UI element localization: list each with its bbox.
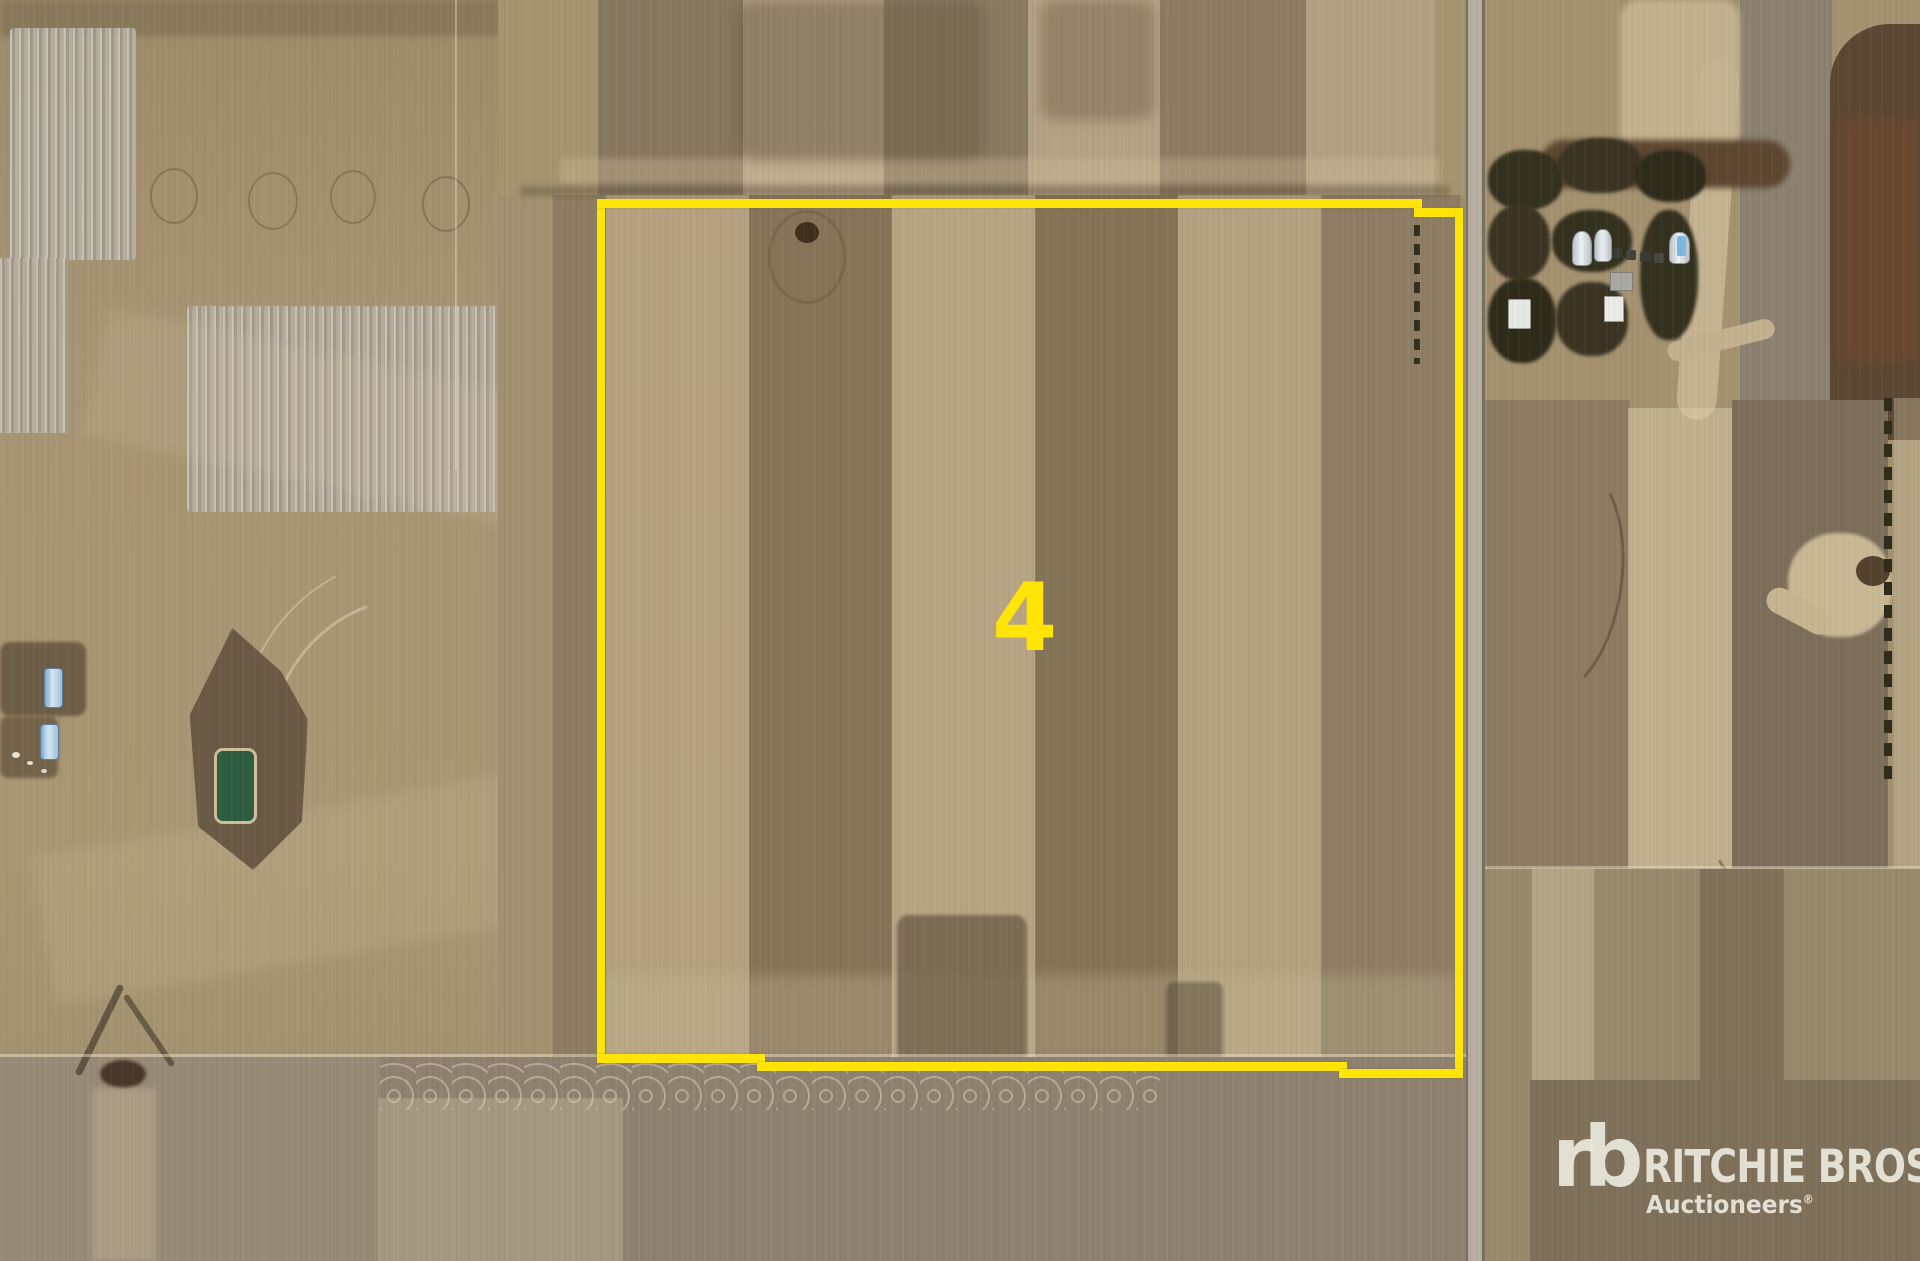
wet-soil-patch-2: [1166, 982, 1223, 1065]
parcel-number-label: 4: [992, 572, 1057, 666]
tree-cluster-1: [1488, 150, 1563, 210]
quonset-building-2: [1594, 229, 1612, 262]
ritchie-bros-logo: rb RITCHIE BROS. Auctioneers®: [1552, 1118, 1920, 1217]
field-ring-mark-1: [150, 168, 198, 224]
parcel-boundary-bottom-c: [1339, 1069, 1463, 1078]
white-outbuilding: [1604, 296, 1624, 322]
right-hedge-line: [1884, 398, 1892, 786]
blue-roof-building-2: [40, 724, 59, 760]
parcel-boundary-bottom-a: [597, 1054, 765, 1063]
logo-text-block: RITCHIE BROS. Auctioneers®: [1643, 1144, 1920, 1217]
farmyard-white-sheds: [12, 752, 20, 758]
wet-soil-patch-1: [897, 915, 1027, 1065]
field-seam-line: [455, 0, 457, 470]
right-bottom-dark-strip: [1700, 869, 1784, 1084]
right-bottom-light-strip: [1532, 869, 1594, 1084]
shrub-line-top: [1414, 206, 1420, 364]
headland-dark-line: [520, 186, 1450, 196]
logo-tagline-row: Auctioneers®: [1646, 1192, 1920, 1217]
parcel-boundary-bottom-b: [757, 1062, 1347, 1071]
gravel-road: [1466, 0, 1485, 1261]
logo-tagline: Auctioneers: [1646, 1190, 1803, 1219]
drainage-light-tail: [92, 1088, 156, 1261]
farm-equipment-row: [1612, 248, 1622, 258]
gray-stubble-patch-2: [0, 258, 68, 433]
right-dark-red-tinge: [1840, 120, 1920, 360]
tree-cluster-8: [1640, 210, 1698, 340]
registered-trademark-icon: ®: [1802, 1193, 1813, 1207]
parcel-bottom-headland: [605, 975, 1455, 1060]
quonset-building-1: [1572, 231, 1592, 266]
tree-cluster-3: [1636, 150, 1706, 202]
right-edge-light-strip: [1894, 398, 1920, 868]
tree-cluster-5: [1552, 210, 1632, 272]
bottom-left-lighter-field: [0, 1057, 380, 1261]
tree-cluster-4: [1488, 205, 1550, 280]
field-ring-mark-2: [248, 172, 298, 230]
top-dark-soil-patch-2: [1040, 0, 1155, 120]
slough-pothole: [795, 222, 819, 243]
dugout-pond: [214, 748, 257, 824]
aerial-satellite-map: 4 rb RITCHIE BROS. Auctioneers®: [0, 0, 1920, 1261]
field-ring-mark-4: [422, 176, 470, 232]
gray-stubble-patch-1: [10, 28, 136, 260]
parcel-boundary-top: [597, 199, 1422, 208]
tree-cluster-2: [1558, 138, 1643, 193]
bottom-light-strip: [378, 1098, 623, 1261]
parcel-boundary-left: [597, 201, 605, 1063]
field-ring-mark-3: [330, 170, 376, 224]
blue-yard-structure: [1677, 236, 1686, 256]
farmyard-dark-patch-1: [0, 642, 86, 716]
drainage-slough: [100, 1060, 146, 1088]
blue-roof-building-1: [44, 668, 63, 708]
rb-monogram-icon: rb: [1552, 1120, 1634, 1217]
top-dark-soil-patch-1: [735, 0, 985, 160]
logo-wordmark: RITCHIE BROS.: [1643, 1144, 1920, 1189]
parcel-boundary-right: [1455, 208, 1463, 1078]
headland-turn-rows: [560, 158, 1440, 184]
white-farmhouse: [1508, 299, 1531, 329]
gray-outbuilding: [1610, 272, 1633, 291]
